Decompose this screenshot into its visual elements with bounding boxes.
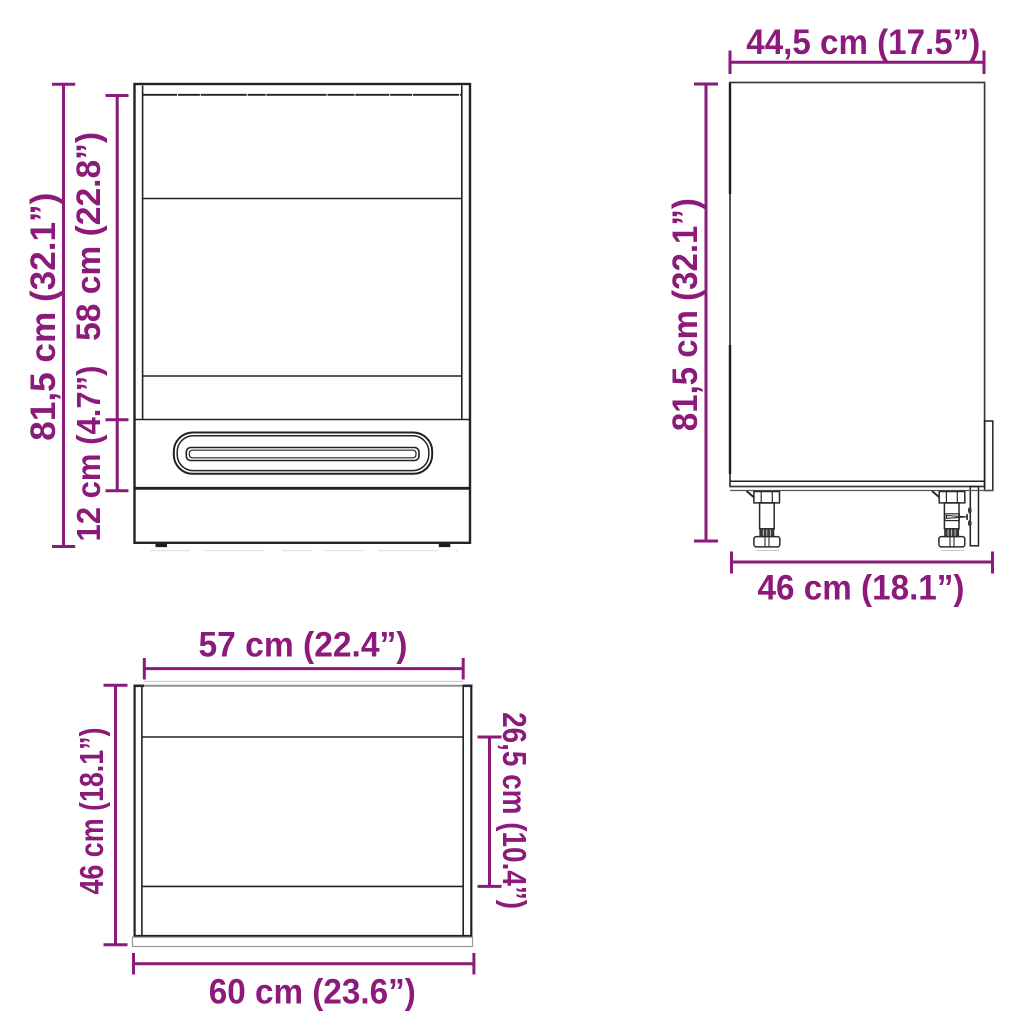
svg-text:58 cm (22.8”): 58 cm (22.8”) bbox=[70, 132, 108, 341]
svg-text:46 cm (18.1”): 46 cm (18.1”) bbox=[73, 728, 110, 895]
svg-text:46 cm (18.1”): 46 cm (18.1”) bbox=[758, 569, 965, 608]
svg-text:81,5 cm (32.1”): 81,5 cm (32.1”) bbox=[666, 198, 705, 431]
svg-text:12 cm (4.7”): 12 cm (4.7”) bbox=[71, 366, 108, 542]
svg-text:26,5 cm (10.4”): 26,5 cm (10.4”) bbox=[496, 712, 533, 909]
svg-text:57 cm (22.4”): 57 cm (22.4”) bbox=[199, 626, 408, 665]
svg-text:60 cm (23.6”): 60 cm (23.6”) bbox=[209, 973, 416, 1012]
svg-text:81,5 cm (32.1”): 81,5 cm (32.1”) bbox=[23, 193, 63, 441]
svg-text:44,5 cm (17.5”): 44,5 cm (17.5”) bbox=[746, 23, 980, 62]
